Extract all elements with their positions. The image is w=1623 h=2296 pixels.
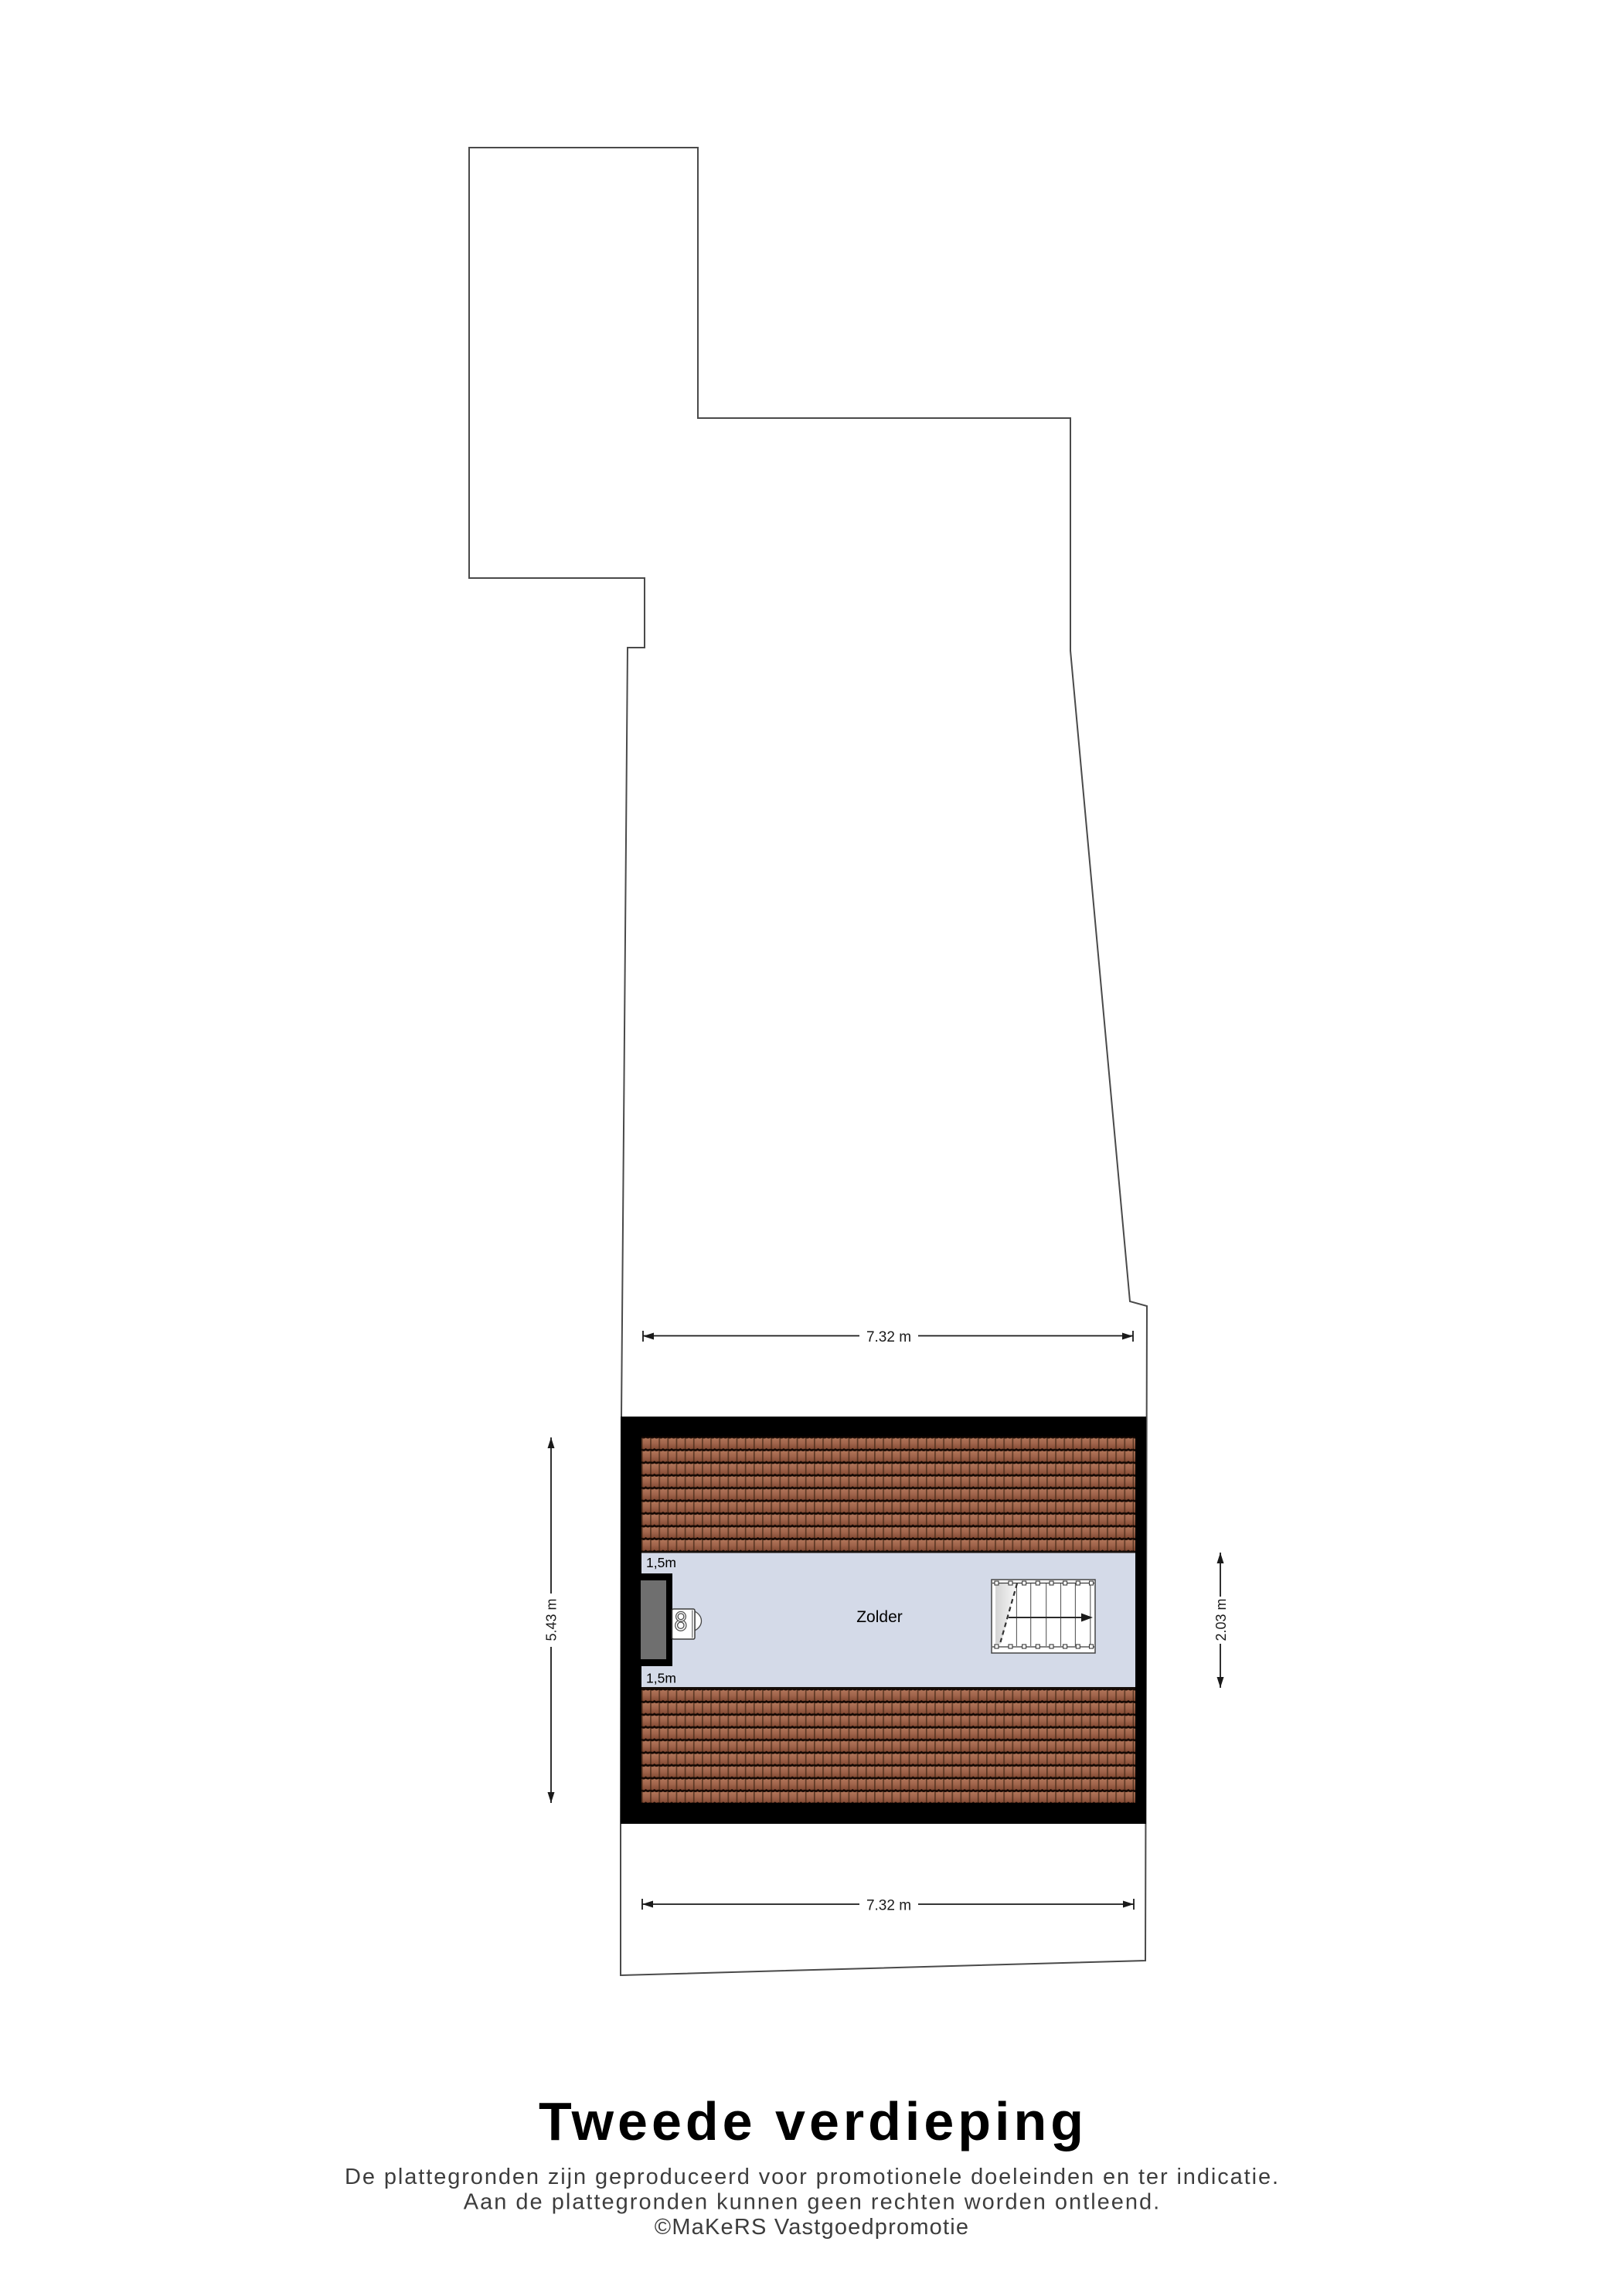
svg-text:2.03 m: 2.03 m — [1213, 1598, 1229, 1641]
svg-text:1,5m: 1,5m — [646, 1671, 676, 1686]
svg-text:5.43 m: 5.43 m — [544, 1598, 560, 1641]
svg-text:7.32 m: 7.32 m — [866, 1898, 911, 1914]
svg-text:Zolder: Zolder — [856, 1608, 903, 1626]
svg-text:7.32 m: 7.32 m — [866, 1329, 911, 1345]
svg-text:Aan de plattegronden kunnen ge: Aan de plattegronden kunnen geen rechten… — [464, 2190, 1161, 2215]
svg-text:1,5m: 1,5m — [646, 1555, 676, 1570]
svg-text:De plattegronden zijn geproduc: De plattegronden zijn geproduceerd voor … — [345, 2165, 1280, 2189]
svg-text:Tweede verdieping: Tweede verdieping — [539, 2091, 1087, 2151]
svg-text:©MaKeRS Vastgoedpromotie: ©MaKeRS Vastgoedpromotie — [655, 2215, 970, 2240]
